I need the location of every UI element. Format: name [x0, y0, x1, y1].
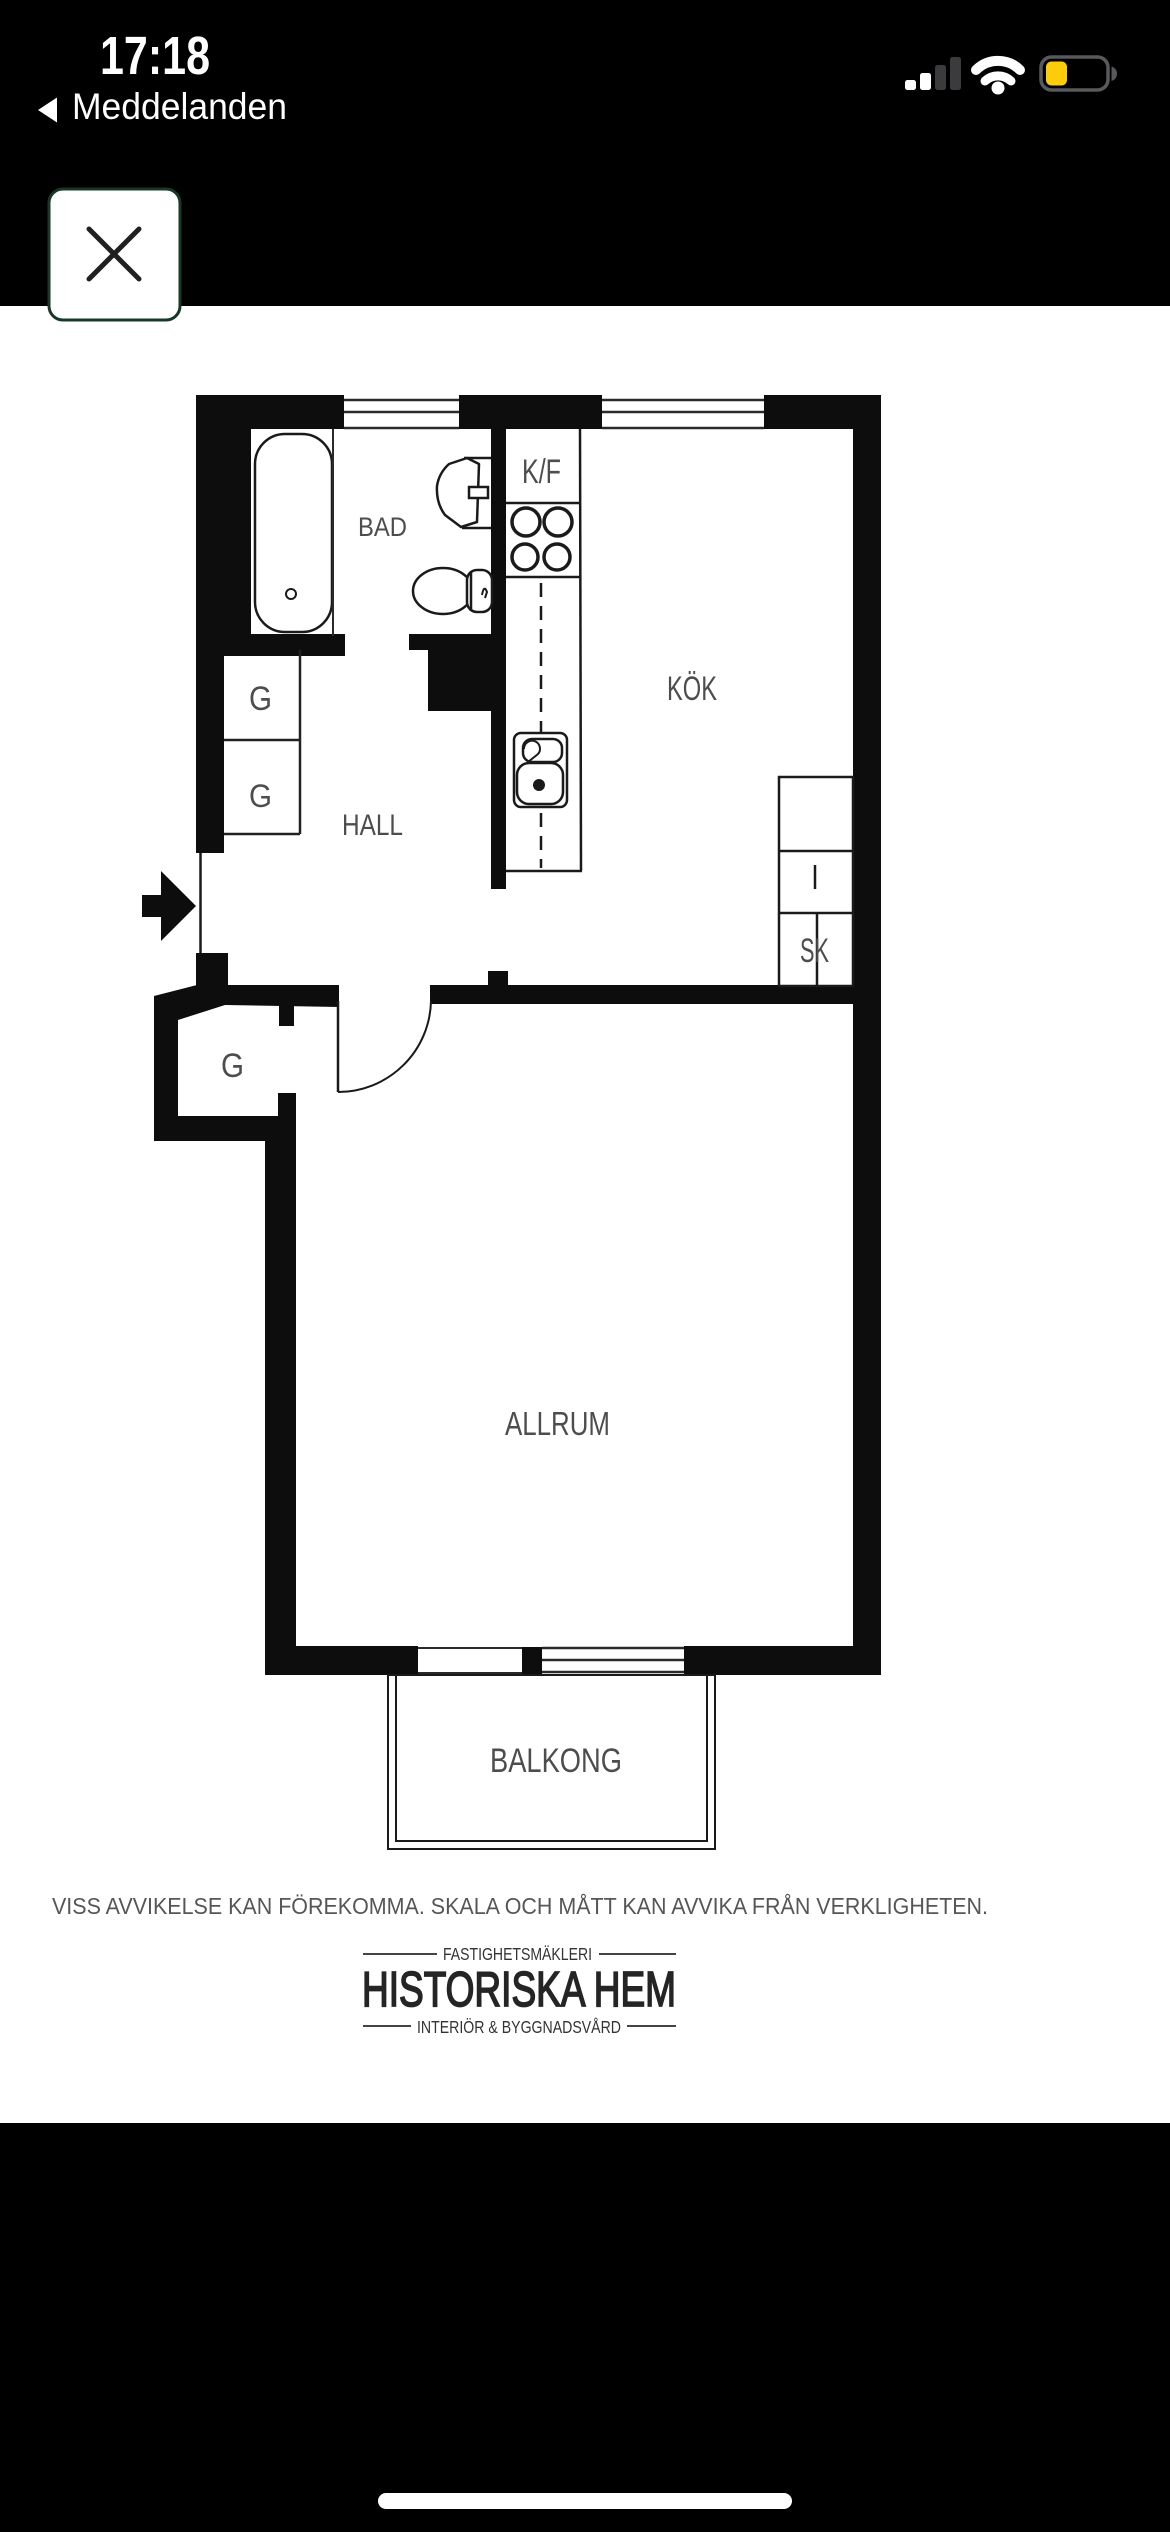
svg-text:Meddelanden: Meddelanden: [72, 86, 287, 127]
svg-text:G: G: [249, 680, 272, 718]
svg-text:ALLRUM: ALLRUM: [505, 1405, 610, 1442]
svg-text:K/F: K/F: [522, 453, 561, 491]
svg-text:KÖK: KÖK: [667, 670, 717, 708]
svg-text:G: G: [221, 1047, 244, 1085]
svg-text:HALL: HALL: [342, 809, 403, 842]
svg-text:INTERIÖR & BYGGNADSVÅRD: INTERIÖR & BYGGNADSVÅRD: [417, 2017, 621, 2037]
svg-text:FASTIGHETSMÄKLERI: FASTIGHETSMÄKLERI: [443, 1944, 592, 1964]
svg-text:G: G: [249, 778, 272, 814]
svg-text:BAD: BAD: [358, 512, 407, 542]
svg-text:HISTORISKA HEM: HISTORISKA HEM: [362, 1963, 676, 2017]
svg-text:BALKONG: BALKONG: [490, 1742, 622, 1780]
svg-text:17:18: 17:18: [100, 26, 210, 86]
svg-text:SK: SK: [800, 932, 829, 970]
svg-text:VISS AVVIKELSE KAN FÖREKOMMA.: VISS AVVIKELSE KAN FÖREKOMMA. SKALA OCH …: [52, 1892, 988, 1919]
